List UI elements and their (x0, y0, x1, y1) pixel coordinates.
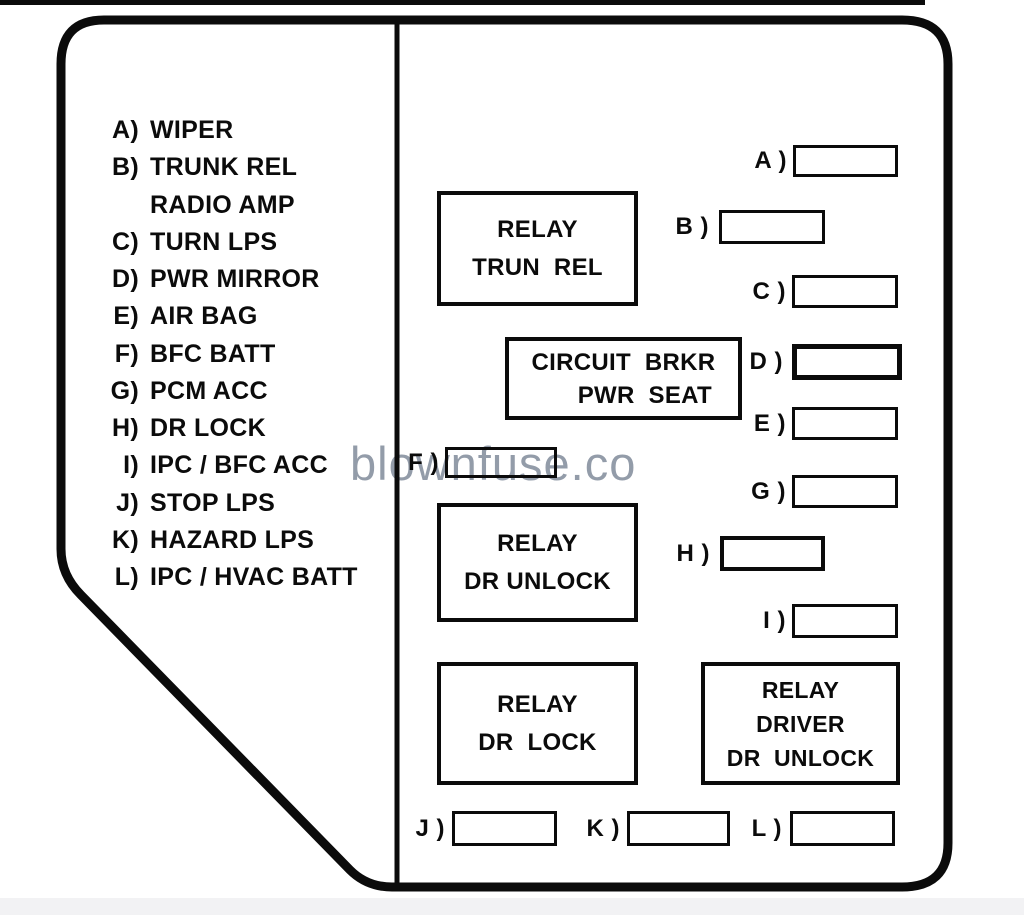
legend-item-a: A)WIPER (108, 112, 358, 149)
legend-key: I) (108, 447, 139, 484)
legend-key: G) (108, 373, 139, 410)
legend-label: RADIO AMP (150, 187, 295, 224)
relay-door-unlock-box: RELAY DR UNLOCK (437, 503, 638, 622)
fuse-slot-j (452, 811, 557, 846)
relay-line: DRIVER (705, 707, 896, 741)
fuse-slot-label-d: D ) (728, 345, 783, 379)
relay-line: PWR SEAT (509, 379, 738, 412)
fuse-slot-label-e: E ) (731, 407, 786, 440)
legend-key: H) (108, 410, 139, 447)
fuse-slot-b (719, 210, 825, 244)
legend-label: IPC / HVAC BATT (150, 559, 358, 596)
legend-label: WIPER (150, 112, 233, 149)
fuse-slot-l (790, 811, 895, 846)
fuse-slot-label-l: L ) (727, 811, 782, 846)
legend-label: STOP LPS (150, 485, 275, 522)
relay-line: TRUN REL (441, 249, 634, 287)
legend-item-k: K)HAZARD LPS (108, 522, 358, 559)
fuse-slot-label-c: C ) (731, 275, 786, 308)
relay-driver-door-unlock-box: RELAY DRIVER DR UNLOCK (701, 662, 900, 785)
legend-item-e: E)AIR BAG (108, 298, 358, 335)
legend-item-d: D)PWR MIRROR (108, 261, 358, 298)
legend-label: HAZARD LPS (150, 522, 314, 559)
relay-door-lock-box: RELAY DR LOCK (437, 662, 638, 785)
legend-label: IPC / BFC ACC (150, 447, 328, 484)
legend-key: D) (108, 261, 139, 298)
legend-key: C) (108, 224, 139, 261)
relay-line: RELAY (705, 673, 896, 707)
legend-label: PWR MIRROR (150, 261, 320, 298)
legend-item-h: H)DR LOCK (108, 410, 358, 447)
fuse-legend-list: A)WIPER B)TRUNK REL RADIO AMP C)TURN LPS… (108, 112, 358, 596)
legend-key: J) (108, 485, 139, 522)
legend-key: B) (108, 149, 139, 186)
relay-line: DR LOCK (441, 724, 634, 762)
legend-label: PCM ACC (150, 373, 268, 410)
legend-item-b: B)TRUNK REL (108, 149, 358, 186)
fuse-slot-a (793, 145, 898, 177)
legend-item-g: G)PCM ACC (108, 373, 358, 410)
legend-label: TURN LPS (150, 224, 277, 261)
legend-label: BFC BATT (150, 336, 276, 373)
fuse-slot-f (445, 447, 557, 478)
legend-key: L) (108, 559, 139, 596)
legend-item-b2: RADIO AMP (108, 187, 358, 224)
legend-item-l: L)IPC / HVAC BATT (108, 559, 358, 596)
fuse-slot-h (720, 536, 825, 571)
relay-line: RELAY (441, 211, 634, 249)
legend-key: F) (108, 336, 139, 373)
fuse-slot-i (792, 604, 898, 638)
legend-key: A) (108, 112, 139, 149)
legend-key: E) (108, 298, 139, 335)
fuse-slot-label-f: F ) (384, 447, 439, 478)
fuse-slot-label-k: K ) (566, 811, 620, 846)
fuse-slot-d (792, 344, 902, 380)
legend-item-j: J)STOP LPS (108, 485, 358, 522)
legend-label: TRUNK REL (150, 149, 297, 186)
relay-line: RELAY (441, 525, 634, 563)
fuse-slot-k (627, 811, 730, 846)
legend-item-i: I)IPC / BFC ACC (108, 447, 358, 484)
page-bottom-strip (0, 898, 1024, 915)
fuse-slot-label-g: G ) (731, 475, 786, 508)
fuse-slot-g (792, 475, 898, 508)
fuse-slot-label-i: I ) (731, 604, 786, 638)
legend-label: DR LOCK (150, 410, 266, 447)
fuse-slot-label-a: A ) (732, 145, 787, 177)
top-edge-line (0, 0, 925, 5)
legend-item-f: F)BFC BATT (108, 336, 358, 373)
fuse-slot-label-b: B ) (654, 210, 709, 244)
fuse-slot-e (792, 407, 898, 440)
fuse-slot-c (792, 275, 898, 308)
relay-line: DR UNLOCK (705, 741, 896, 775)
circuit-breaker-power-seat-box: CIRCUIT BRKR PWR SEAT (505, 337, 742, 420)
fuse-slot-label-h: H ) (655, 536, 710, 571)
legend-item-c: C)TURN LPS (108, 224, 358, 261)
legend-key: K) (108, 522, 139, 559)
relay-trunk-release-box: RELAY TRUN REL (437, 191, 638, 306)
relay-line: DR UNLOCK (441, 563, 634, 601)
legend-label: AIR BAG (150, 298, 258, 335)
relay-line: RELAY (441, 686, 634, 724)
fuse-box-diagram: blownfuse.co A)WIPER B)TRUNK REL RADIO A… (0, 0, 1024, 915)
fuse-slot-label-j: J ) (392, 811, 445, 846)
relay-line: CIRCUIT BRKR (509, 346, 738, 379)
